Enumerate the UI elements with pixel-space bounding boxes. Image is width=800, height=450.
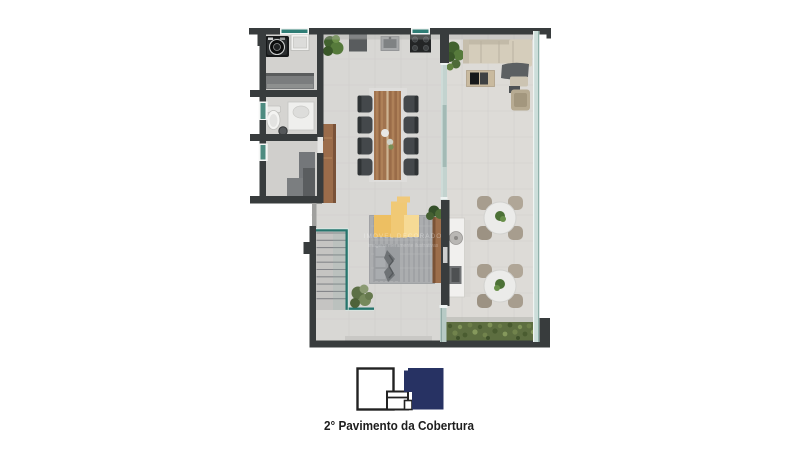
svg-text:2° Pavimento da Cobertura: 2° Pavimento da Cobertura	[324, 418, 475, 433]
svg-text:IMOVEL DECORADO: IMOVEL DECORADO	[364, 233, 443, 240]
svg-text:imagens meramente ilustrativas: imagens meramente ilustrativas	[368, 243, 439, 249]
